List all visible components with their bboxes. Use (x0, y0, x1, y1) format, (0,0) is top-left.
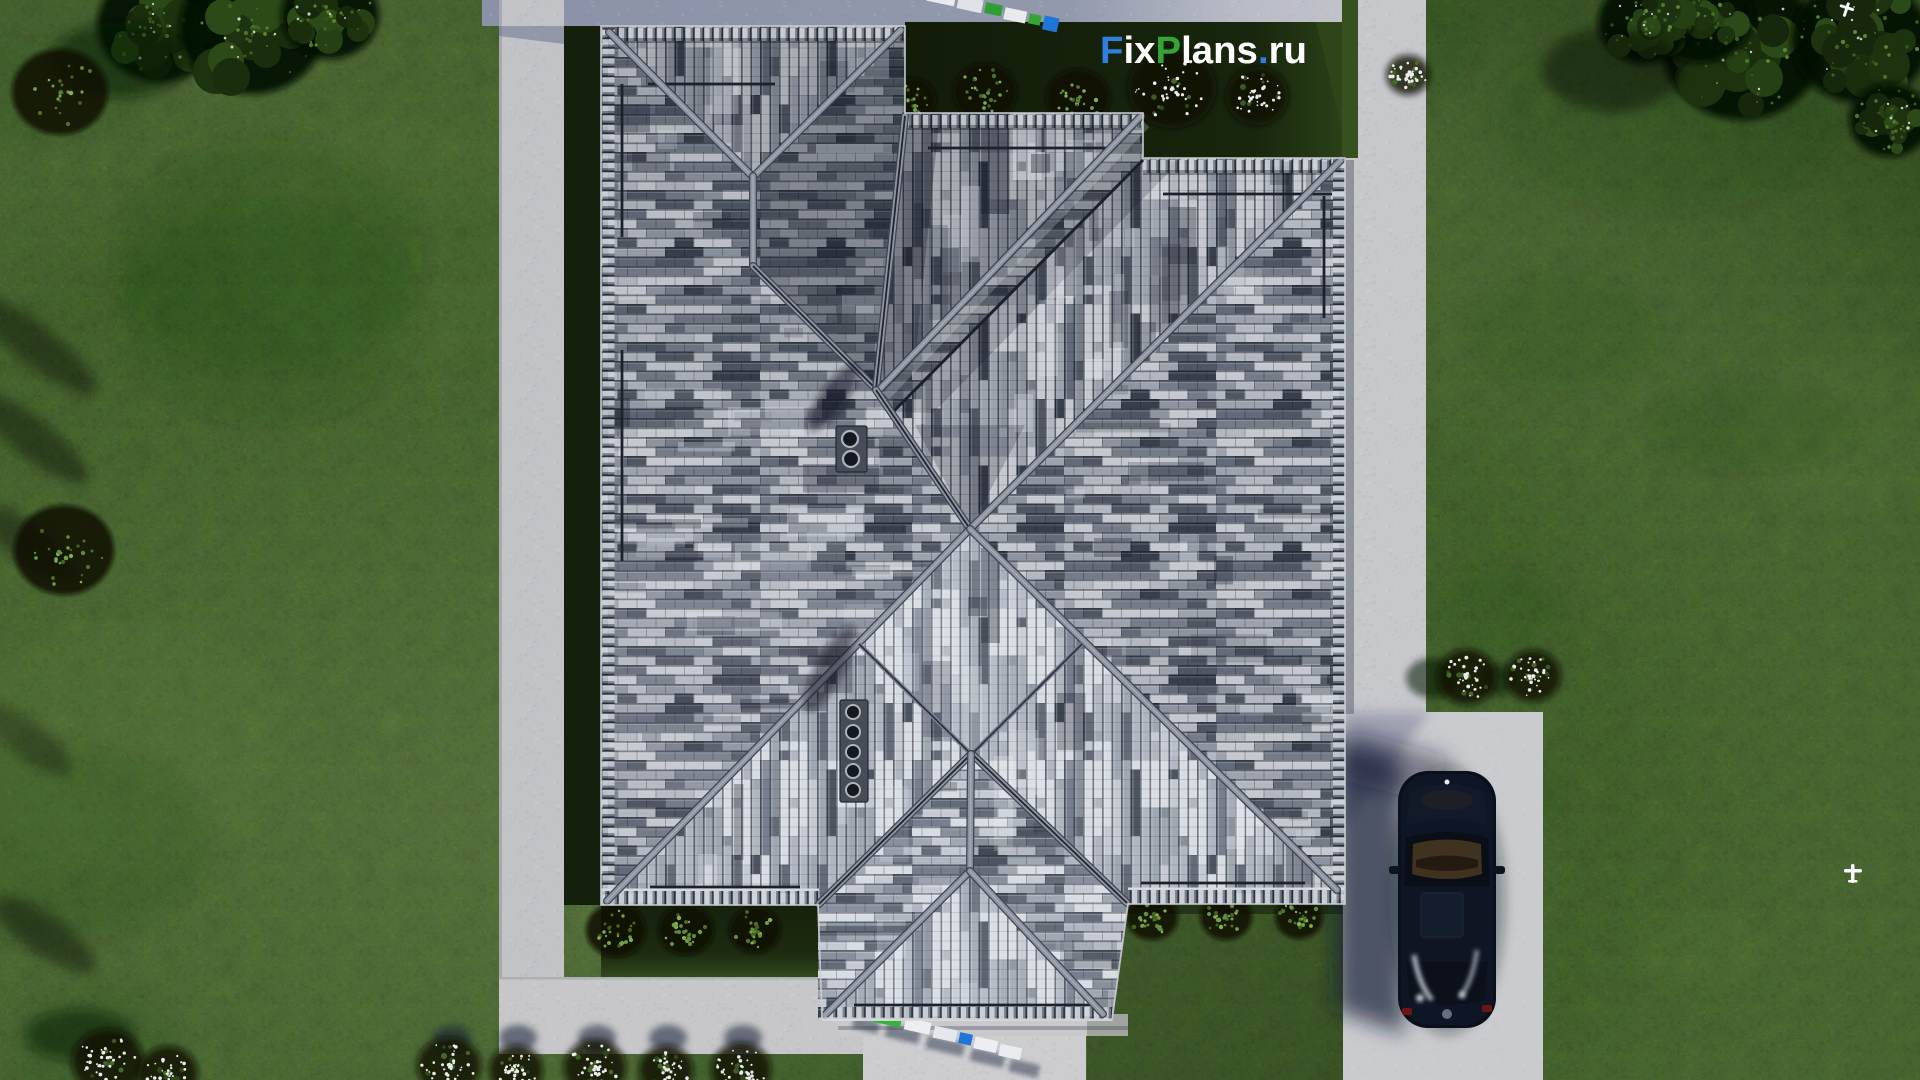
svg-text:FixPlans.ru: FixPlans.ru (1100, 30, 1307, 72)
